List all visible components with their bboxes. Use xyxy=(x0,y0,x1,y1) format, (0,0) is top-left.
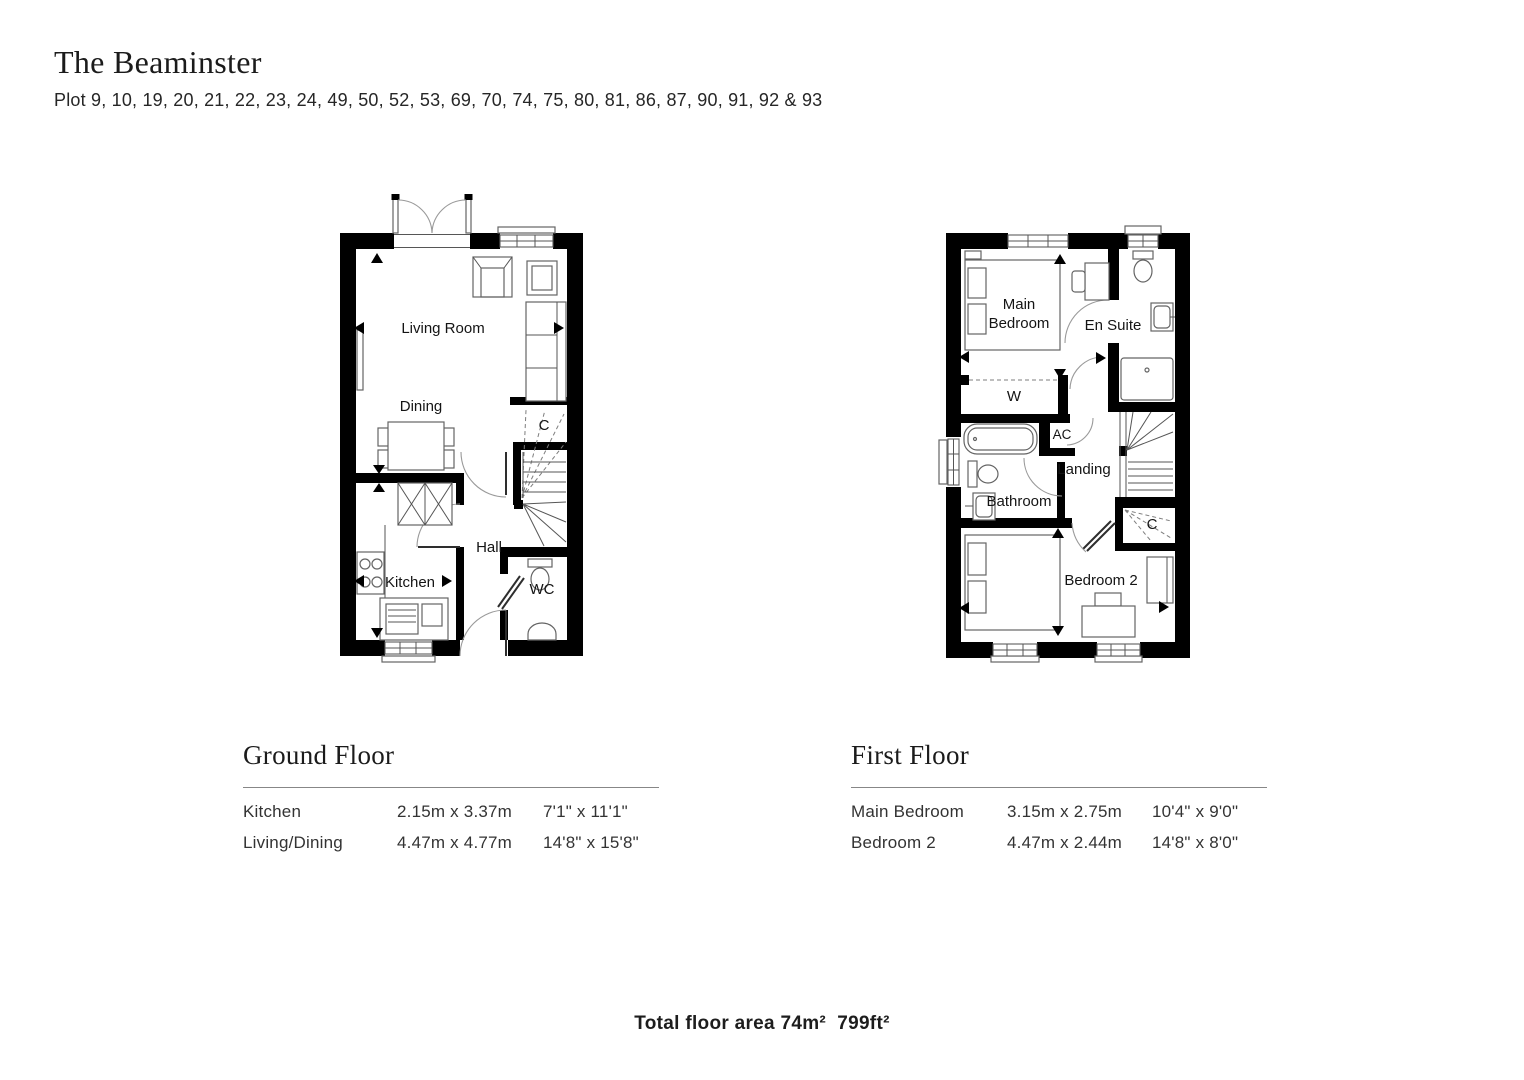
bedroom2-door-icon xyxy=(1072,521,1115,552)
wc-label: WC xyxy=(530,581,555,598)
first-floor-heading: First Floor xyxy=(851,740,1267,771)
room-size-imperial: 14'8" x 8'0" xyxy=(1152,827,1267,858)
room-name: Living/Dining xyxy=(243,827,397,858)
room-size-imperial: 7'1" x 11'1" xyxy=(543,796,659,827)
kitchen-units xyxy=(357,483,452,640)
wc-fixtures xyxy=(528,559,556,640)
window-icon xyxy=(991,644,1039,662)
dimension-row: Living/Dining 4.47m x 4.77m 14'8" x 15'8… xyxy=(243,827,659,858)
first-floor-dimensions: First Floor Main Bedroom 3.15m x 2.75m 1… xyxy=(851,740,1267,858)
kitchen-label: Kitchen xyxy=(385,574,435,591)
dining-furniture xyxy=(378,422,454,470)
ac-label: AC xyxy=(1053,427,1072,442)
dimension-row: Main Bedroom 3.15m x 2.75m 10'4" x 9'0" xyxy=(851,796,1267,827)
room-size-imperial: 10'4" x 9'0" xyxy=(1152,796,1267,827)
window-icon xyxy=(1125,226,1161,247)
bathroom-label: Bathroom xyxy=(986,493,1051,510)
ground-floor-dimensions: Ground Floor Kitchen 2.15m x 3.37m 7'1" … xyxy=(243,740,659,858)
room-size-metric: 4.47m x 4.77m xyxy=(397,827,543,858)
room-size-metric: 3.15m x 2.75m xyxy=(1007,796,1152,827)
ensuite-label: En Suite xyxy=(1085,317,1142,334)
dimension-row: Bedroom 2 4.47m x 2.44m 14'8" x 8'0" xyxy=(851,827,1267,858)
room-size-metric: 4.47m x 2.44m xyxy=(1007,827,1152,858)
divider-line xyxy=(851,787,1267,788)
room-name: Bedroom 2 xyxy=(851,827,1007,858)
window-icon xyxy=(1095,644,1142,662)
room-name: Main Bedroom xyxy=(851,796,1007,827)
window-icon xyxy=(382,642,435,662)
living-room-label: Living Room xyxy=(401,320,484,337)
main-bedroom-label-line2: Bedroom xyxy=(989,315,1050,332)
page-title: The Beaminster xyxy=(54,44,262,81)
room-size-imperial: 14'8" x 15'8" xyxy=(543,827,659,858)
hall-label: Hall xyxy=(476,539,502,556)
plot-list: Plot 9, 10, 19, 20, 21, 22, 23, 24, 49, … xyxy=(54,90,822,111)
total-floor-area: Total floor area 74m² 799ft² xyxy=(0,1013,1524,1035)
ground-floor-heading: Ground Floor xyxy=(243,740,659,771)
divider-line xyxy=(243,787,659,788)
main-bedroom-label-line1: Main xyxy=(1003,296,1036,313)
floorplan-sheet: The Beaminster Plot 9, 10, 19, 20, 21, 2… xyxy=(0,0,1524,1080)
dining-label: Dining xyxy=(400,398,443,415)
window-icon xyxy=(498,227,555,247)
main-bedroom-furniture xyxy=(965,251,1109,350)
living-room-furniture xyxy=(473,257,566,401)
bedroom2-label: Bedroom 2 xyxy=(1064,572,1137,589)
ground-floor-plan: Living Room Dining Kitchen Hall C WC xyxy=(330,190,600,670)
window-icon xyxy=(1008,235,1068,247)
room-name: Kitchen xyxy=(243,796,397,827)
landing-label: Landing xyxy=(1057,461,1110,478)
wardrobe-label: W xyxy=(1007,388,1022,405)
wc-door-icon xyxy=(498,576,524,609)
bathroom-door-icon xyxy=(1024,458,1062,496)
dimension-row: Kitchen 2.15m x 3.37m 7'1" x 11'1" xyxy=(243,796,659,827)
window-icon xyxy=(939,439,959,485)
hall-door-icon xyxy=(461,452,506,497)
first-floor-plan: Main Bedroom En Suite W AC Landing Bathr… xyxy=(935,190,1205,670)
radiator-icon xyxy=(357,330,363,390)
first-stairs xyxy=(1120,412,1173,497)
cupboard-label: C xyxy=(539,417,550,434)
room-size-metric: 2.15m x 3.37m xyxy=(397,796,543,827)
cupboard-label: C xyxy=(1147,516,1158,533)
